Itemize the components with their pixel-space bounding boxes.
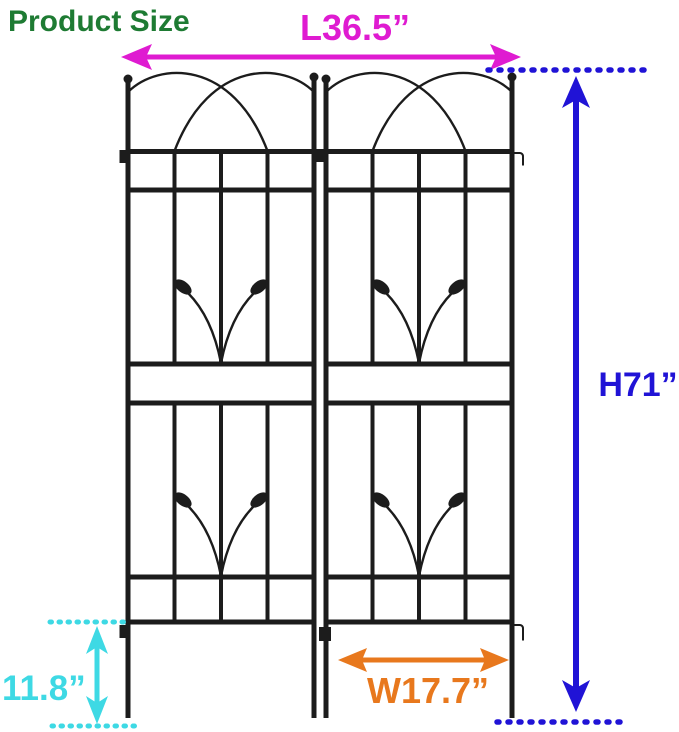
diagram-canvas: Product Size L36.5” H71” W17.7” [0,0,679,732]
panel-connector-top [315,149,328,162]
side-bracket-bottom-left [120,625,127,638]
trellis-figure [120,73,524,719]
height-label: H71” [598,366,677,404]
width-label: W17.7” [367,670,489,711]
side-bracket-top-left [120,150,127,163]
product-size-diagram: Product Size L36.5” H71” W17.7” [0,0,679,732]
width-dimension: W17.7” [338,648,509,711]
length-label: L36.5” [300,7,410,48]
trellis-panel-1 [124,73,319,719]
trellis-panel-2 [322,73,517,719]
page-title: Product Size [8,5,190,38]
panel-connector-bottom [319,627,331,641]
clearance-label: 11.8” [2,669,86,708]
